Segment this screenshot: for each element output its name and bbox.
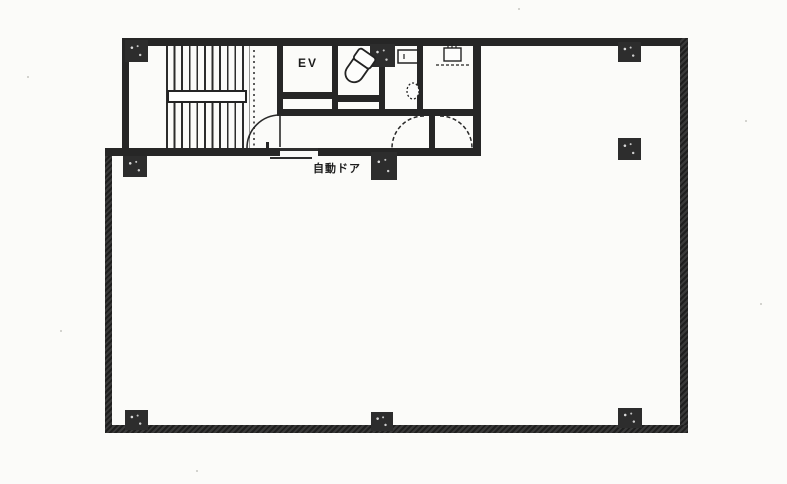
auto-door-label: 自動ドア <box>313 160 361 176</box>
fixtures-layer <box>0 0 787 484</box>
sink-icon <box>444 48 461 61</box>
urinal-icon <box>398 50 419 63</box>
door-jamb-tick <box>266 142 269 148</box>
door-arc-toilet-b <box>440 116 472 148</box>
paper-speck <box>196 470 198 472</box>
paper-speck <box>518 8 520 10</box>
paper-speck <box>760 303 762 305</box>
floor-plan: EV 自動ドア <box>0 0 787 484</box>
paper-speck <box>745 120 747 122</box>
basin-icon <box>407 83 419 99</box>
door-arc-toilet-a <box>392 116 424 148</box>
elevator-label: EV <box>283 56 333 70</box>
door-arc-stairwell <box>247 115 280 148</box>
paper-speck <box>60 330 62 332</box>
paper-speck <box>27 76 29 78</box>
toilet-icon <box>341 48 377 87</box>
sink-faucet-ticks <box>448 43 456 48</box>
